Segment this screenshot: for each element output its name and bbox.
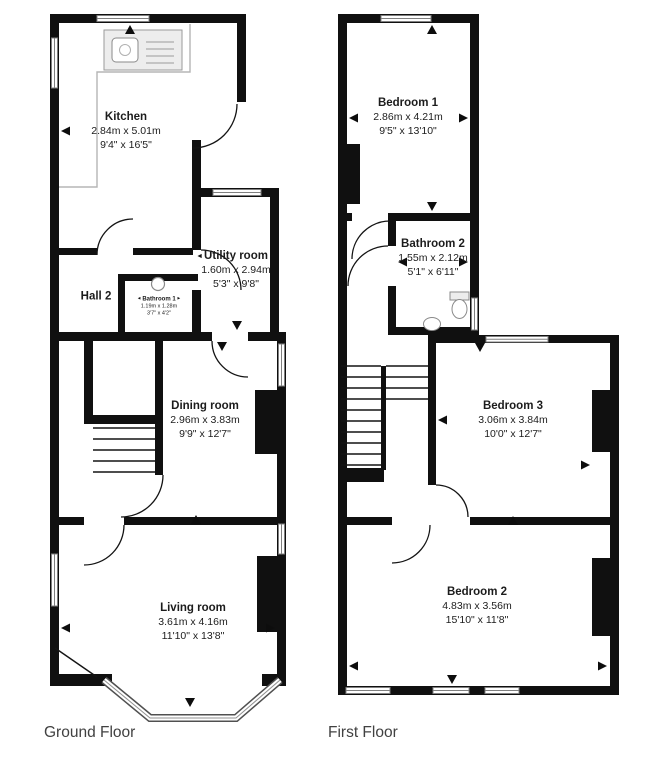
measure-arrow-icon: [438, 416, 447, 425]
room-name: Hall 2: [81, 290, 112, 305]
measure-arrow-icon: [459, 114, 468, 123]
measure-arrow-icon: [427, 202, 437, 211]
room-dim-metric: 2.86m x 4.21m: [373, 111, 442, 125]
ground-staircase: [93, 428, 155, 472]
room-name: Kitchen: [91, 110, 160, 125]
room-name: Bathroom 1: [142, 296, 175, 302]
room-dim-imperial: 10'0" x 12'7": [478, 427, 547, 441]
room-dim-imperial: 3'7" x 4'2": [136, 310, 182, 317]
measure-arrow-icon: [581, 461, 590, 470]
room-dim-metric: 4.83m x 3.56m: [442, 600, 511, 614]
room-label-bedroom2: Bedroom 2 4.83m x 3.56m 15'10" x 11'8": [442, 585, 511, 627]
measure-arrow-icon: [232, 321, 242, 330]
room-name-row: ◄Utility room►: [195, 249, 277, 264]
room-label-hall2: Hall 2: [81, 290, 112, 305]
room-dim-metric: 3.06m x 3.84m: [478, 414, 547, 428]
room-dim-metric: 1.60m x 2.94m: [195, 264, 277, 278]
measure-arrow-icon: [61, 624, 70, 633]
measure-arrow-icon: [349, 114, 358, 123]
room-dim-metric: 3.61m x 4.16m: [158, 616, 227, 630]
measure-arrow-icon: ◄: [137, 295, 141, 300]
measure-arrow-icon: ◄: [196, 253, 203, 260]
toilet: [450, 292, 469, 319]
room-label-living: Living room 3.61m x 4.16m 11'10" x 13'8": [158, 601, 227, 643]
measure-arrow-icon: [217, 342, 227, 351]
room-dim-imperial: 5'3" x 9'8": [195, 277, 277, 291]
room-label-bathroom2: Bathroom 2 1.55m x 2.12m 5'1" x 6'11": [398, 237, 467, 279]
measure-arrow-icon: [447, 675, 457, 684]
room-dim-metric: 1.19m x 1.28m: [136, 304, 182, 311]
room-name: Utility room: [204, 250, 268, 262]
ground-walls: [50, 14, 286, 686]
room-label-bathroom1: ◄Bathroom 1► 1.19m x 1.28m 3'7" x 4'2": [136, 295, 182, 316]
room-dim-imperial: 11'10" x 13'8": [158, 629, 227, 643]
room-dim-imperial: 9'9" x 12'7": [170, 427, 239, 441]
floorplan-page: Kitchen 2.84m x 5.01m 9'4" x 16'5" ◄Util…: [0, 0, 670, 763]
room-dim-metric: 2.96m x 3.83m: [170, 414, 239, 428]
measure-arrow-icon: [349, 662, 358, 671]
kitchen-sink: [104, 30, 182, 70]
first-floor-caption: First Floor: [328, 724, 398, 742]
room-dim-imperial: 9'5" x 13'10": [373, 124, 442, 138]
room-dim-imperial: 15'10" x 11'8": [442, 613, 511, 627]
room-name: Bedroom 3: [478, 399, 547, 414]
room-name-row: ◄Bathroom 1►: [136, 295, 182, 303]
room-label-bedroom3: Bedroom 3 3.06m x 3.84m 10'0" x 12'7": [478, 399, 547, 441]
room-name: Dining room: [170, 399, 239, 414]
room-dim-metric: 2.84m x 5.01m: [91, 125, 160, 139]
measure-arrow-icon: ►: [269, 253, 276, 260]
room-dim-imperial: 9'4" x 16'5": [91, 138, 160, 152]
measure-arrow-icon: [598, 662, 607, 671]
room-label-kitchen: Kitchen 2.84m x 5.01m 9'4" x 16'5": [91, 110, 160, 152]
room-name: Living room: [158, 601, 227, 616]
room-name: Bedroom 1: [373, 96, 442, 111]
room-label-utility: ◄Utility room► 1.60m x 2.94m 5'3" x 9'8": [195, 249, 277, 291]
bathroom2-basin: [424, 318, 441, 331]
measure-arrow-icon: [475, 343, 485, 352]
room-name: Bathroom 2: [398, 237, 467, 252]
room-dim-metric: 1.55m x 2.12m: [398, 252, 467, 266]
bathroom1-basin: [152, 278, 165, 291]
room-name: Bedroom 2: [442, 585, 511, 600]
measure-arrow-icon: [185, 698, 195, 707]
measure-arrow-icon: [427, 25, 437, 34]
room-label-dining: Dining room 2.96m x 3.83m 9'9" x 12'7": [170, 399, 239, 441]
room-label-bedroom1: Bedroom 1 2.86m x 4.21m 9'5" x 13'10": [373, 96, 442, 138]
measure-arrow-icon: ►: [177, 295, 181, 300]
ground-floor-caption: Ground Floor: [44, 724, 135, 742]
measure-arrow-icon: [61, 127, 70, 136]
room-dim-imperial: 5'1" x 6'11": [398, 265, 467, 279]
